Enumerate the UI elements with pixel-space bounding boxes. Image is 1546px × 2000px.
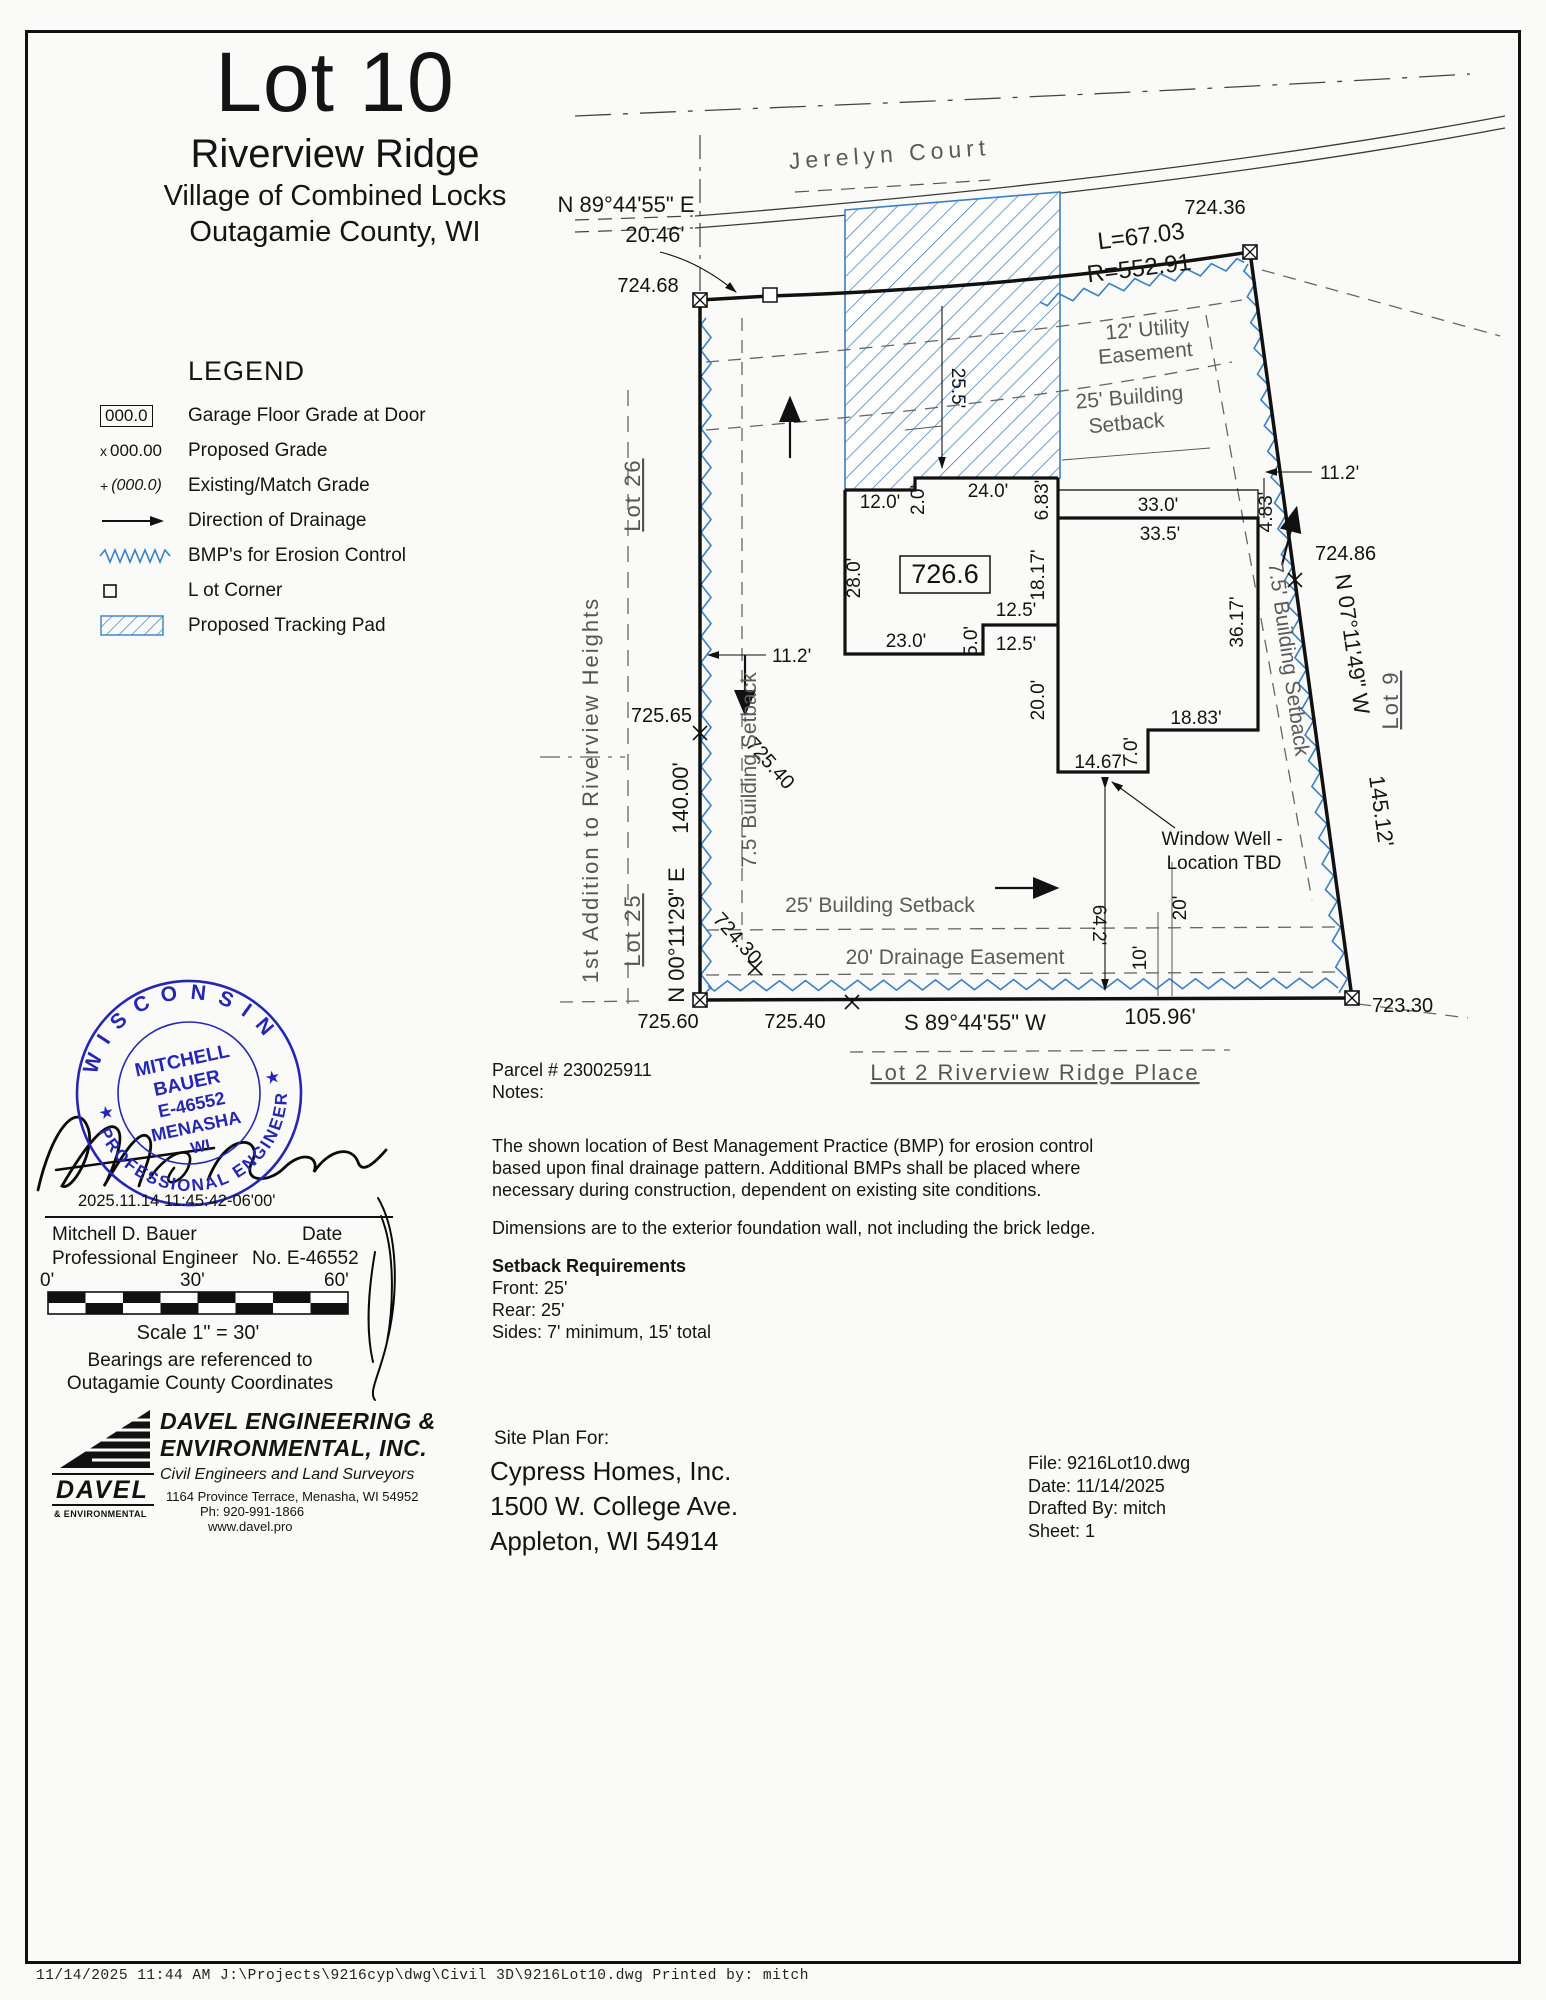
file-sheet: Sheet: 1 (1028, 1520, 1190, 1543)
parcel-number: Parcel # 230025911 (492, 1060, 1122, 1082)
lot-9: Lot 9 (1378, 671, 1403, 730)
setback-bottom: 25' Building Setback (785, 894, 975, 917)
date-label: Date (302, 1224, 342, 1246)
scale-0: 0' (40, 1270, 54, 1292)
site-plan-sheet: Lot 10 Riverview Ridge Village of Combin… (0, 0, 1546, 2000)
stamp-star-right: ★ (264, 1068, 281, 1088)
stamp-star-left: ★ (98, 1103, 115, 1123)
firm-name-1: DAVEL ENGINEERING & (160, 1408, 500, 1435)
scale-60: 60' (324, 1270, 349, 1292)
road-centerline (575, 74, 1470, 116)
addition-name: 1st Addition to Riverview Heights (578, 597, 603, 983)
firm-website: www.davel.pro (208, 1519, 500, 1534)
lot-25: Lot 25 (620, 893, 645, 966)
grade-se: 723.30 (1372, 995, 1433, 1017)
dim-4-83: 4.83' (1256, 492, 1277, 533)
note-bmp: The shown location of Best Management Pr… (492, 1136, 1122, 1202)
dim-64-2: 64.2' (1088, 905, 1109, 946)
window-well-line2: Location TBD (1167, 853, 1282, 874)
scale-bar (48, 1292, 348, 1316)
client-address-1: 1500 W. College Ave. (490, 1491, 738, 1522)
bearing-north-length: 20.46' (625, 222, 684, 247)
dim-12-0: 12.0' (860, 492, 901, 513)
setback-front: Front: 25' (492, 1278, 1122, 1300)
setback-requirements-heading: Setback Requirements (492, 1256, 1122, 1278)
garage-floor-grade: 726.6 (911, 559, 979, 589)
firm-name-2: ENVIRONMENTAL, INC. (160, 1435, 500, 1462)
dim-6-83: 6.83' (1032, 480, 1053, 521)
scale-text: Scale 1" = 30' (48, 1322, 348, 1345)
curve-length: L=67.03 (1096, 218, 1186, 255)
dim-33-0: 33.0' (1138, 495, 1179, 516)
notes-heading: Notes: (492, 1082, 1122, 1104)
setback-top-2: Setback (1088, 409, 1166, 439)
pe-stamp: W I S C O N S I N PROFESSIONAL ENGINEER … (58, 962, 320, 1224)
note-dimensions: Dimensions are to the exterior foundatio… (492, 1218, 1122, 1240)
engineer-name: Mitchell D. Bauer (52, 1224, 197, 1246)
boundary-east (1250, 252, 1352, 998)
bearing-east: N 07°11'49" W (1330, 572, 1374, 716)
window-well-line1: Window Well - (1161, 829, 1282, 850)
street-name: Jerelyn Court (788, 134, 991, 174)
grade-south: 725.40 (764, 1011, 825, 1033)
bearing-north: N 89°44'55" E (557, 192, 694, 217)
stamp-state2: WI (189, 1137, 212, 1158)
setback-top-1: 25' Building (1075, 381, 1185, 413)
scale-30: 30' (180, 1270, 205, 1292)
firm-phone: Ph: 920-991-1866 (200, 1504, 500, 1519)
dim-36-17: 36.17' (1227, 596, 1248, 647)
dim-10: 10' (1130, 946, 1151, 971)
dim-28-0: 28.0' (844, 558, 865, 599)
road-edge-south (695, 128, 1505, 228)
file-date: Date: 11/14/2025 (1028, 1475, 1190, 1498)
grade-sw: 725.60 (637, 1011, 698, 1033)
bearing-east-length: 145.12' (1364, 774, 1399, 848)
dim-24-0: 24.0' (968, 481, 1009, 502)
setback-west: 7.5' Building Setback (738, 672, 761, 868)
grade-west: 725.65 (631, 705, 692, 727)
dim-14-67: 14.67' (1074, 752, 1125, 773)
boundary-south (700, 998, 1352, 1000)
client-heading: Site Plan For: (494, 1428, 738, 1450)
bearing-south: S 89°44'55" W (904, 1010, 1046, 1035)
proposed-tracking-pad (845, 192, 1060, 490)
grade-nw: 724.68 (617, 275, 678, 297)
grade-east: 724.86 (1315, 543, 1376, 565)
signature-timestamp: 2025.11.14 11:45:42-06'00' (78, 1192, 275, 1211)
logo-wordmark: DAVEL (56, 1476, 149, 1504)
client-address-2: Appleton, WI 54914 (490, 1526, 738, 1557)
grade-south-2: 724.30 (708, 909, 765, 969)
client-name: Cypress Homes, Inc. (490, 1456, 738, 1487)
setback-rear: Rear: 25' (492, 1300, 1122, 1322)
engineer-title: Professional Engineer (52, 1248, 238, 1270)
dim-18-83: 18.83' (1170, 708, 1221, 729)
file-drafted-by: Drafted By: mitch (1028, 1497, 1190, 1520)
dim-33-5: 33.5' (1140, 524, 1181, 545)
dim-11-2-east: 11.2' (1320, 463, 1359, 484)
dim-23-0: 23.0' (886, 631, 927, 652)
firm-tagline: Civil Engineers and Land Surveyors (160, 1466, 500, 1484)
dim-18-17: 18.17' (1028, 549, 1049, 600)
bearing-south-length: 105.96' (1124, 1004, 1196, 1029)
plot-stamp-footer: 11/14/2025 11:44 AM J:\Projects\9216cyp\… (36, 1968, 809, 1984)
file-name: File: 9216Lot10.dwg (1028, 1452, 1190, 1475)
window-well-note: Window Well - Location TBD (1161, 829, 1282, 874)
dim-5-0: 5.0' (961, 626, 982, 656)
firm-block: DAVEL ENGINEERING & ENVIRONMENTAL, INC. … (160, 1408, 500, 1534)
signature-line (45, 1216, 393, 1218)
firm-address: 1164 Province Terrace, Menasha, WI 54952 (166, 1489, 500, 1504)
grade-ne: 724.36 (1184, 197, 1245, 219)
file-info-block: File: 9216Lot10.dwg Date: 11/14/2025 Dra… (1028, 1452, 1190, 1542)
dim-2-0: 2.0' (908, 485, 929, 515)
logo-subtext: & ENVIRONMENTAL (54, 1509, 147, 1519)
dim-20-0: 20.0' (1028, 680, 1049, 721)
dim-11-2-west: 11.2' (772, 646, 811, 667)
dim-12-5-a: 12.5' (996, 600, 1037, 621)
davel-logo: DAVEL & ENVIRONMENTAL (42, 1406, 157, 1526)
engineer-license: No. E-46552 (252, 1248, 359, 1270)
bearing-west-length: 140.00' (668, 762, 693, 834)
dim-12-5-b: 12.5' (996, 634, 1037, 655)
dim-20b: 20' (1170, 896, 1191, 921)
notes-block: Parcel # 230025911 Notes: The shown loca… (492, 1060, 1122, 1344)
bearing-west: N 00°11'29" E (664, 867, 689, 1002)
lot-26: Lot 26 (620, 458, 645, 531)
setback-sides: Sides: 7' minimum, 15' total (492, 1322, 1122, 1344)
bearing-reference-note: Bearings are referenced to Outagamie Cou… (40, 1350, 360, 1396)
drainage-easement: 20' Drainage Easement (846, 946, 1065, 969)
client-block: Site Plan For: Cypress Homes, Inc. 1500 … (490, 1428, 738, 1561)
dim-25-5: 25.5' (947, 368, 968, 409)
